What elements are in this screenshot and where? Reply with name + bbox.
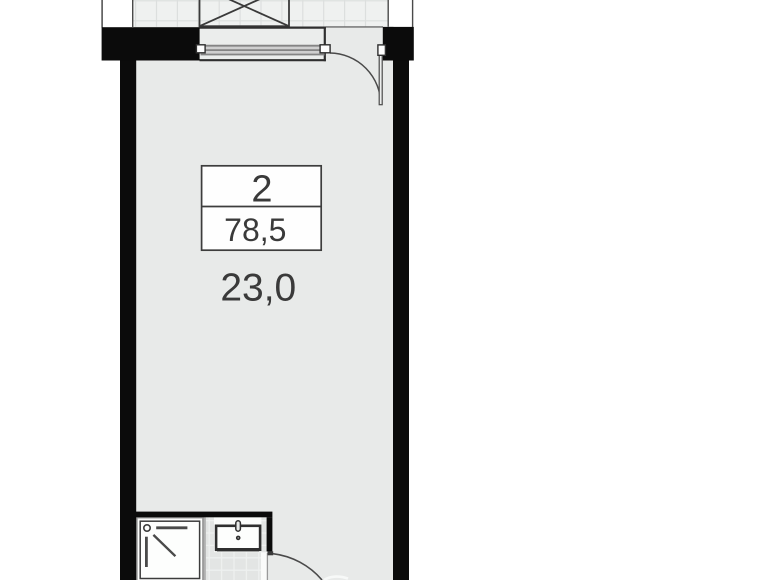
svg-text:78,5: 78,5 — [224, 212, 286, 248]
svg-text:23,0: 23,0 — [220, 267, 296, 310]
svg-text:2: 2 — [251, 168, 272, 210]
